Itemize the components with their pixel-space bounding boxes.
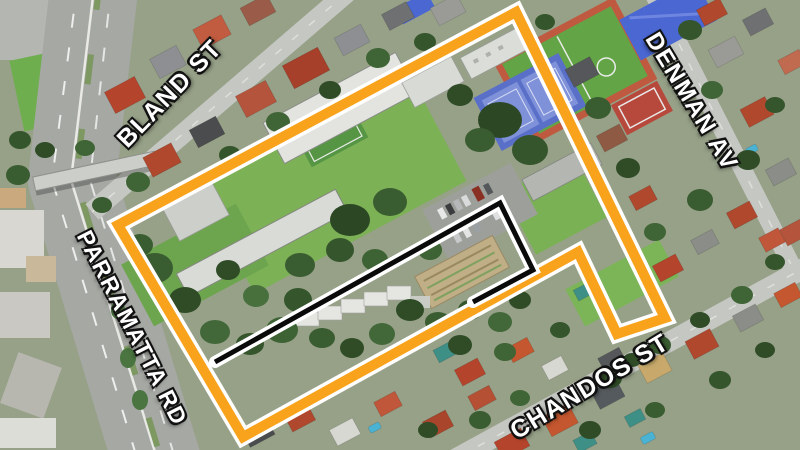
aerial-map: BLAND ST DENMAN AV PARRAMATTA RD CHANDOS… <box>0 0 800 450</box>
